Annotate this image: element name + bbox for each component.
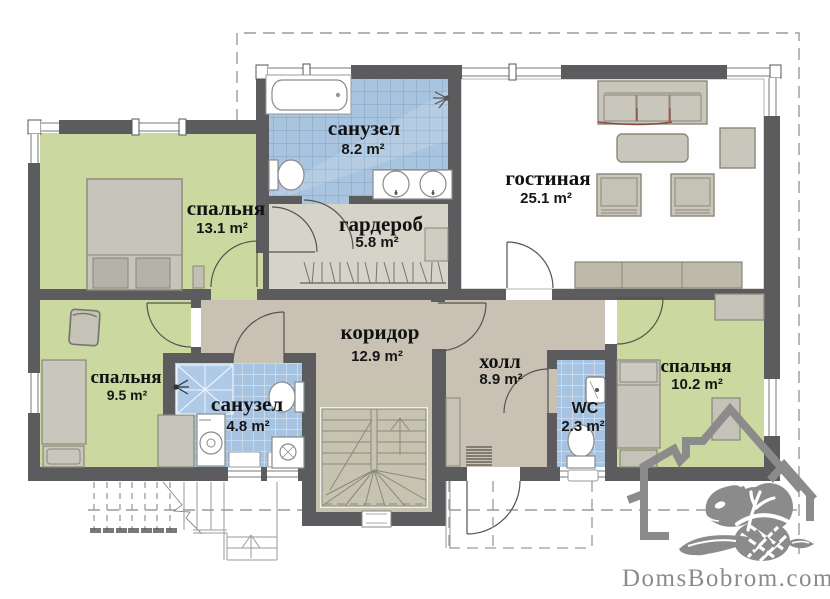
svg-text:гардероб: гардероб xyxy=(339,212,423,236)
svg-text:коридор: коридор xyxy=(341,320,420,344)
svg-text:4.8 m²: 4.8 m² xyxy=(226,418,269,435)
svg-text:WC: WC xyxy=(572,400,599,417)
svg-text:8.2 m²: 8.2 m² xyxy=(341,141,384,158)
svg-text:13.1 m²: 13.1 m² xyxy=(196,220,248,237)
svg-text:2.3 m²: 2.3 m² xyxy=(561,418,604,435)
svg-text:холл: холл xyxy=(479,351,520,373)
svg-text:спальня: спальня xyxy=(91,367,162,388)
svg-text:9.5 m²: 9.5 m² xyxy=(107,387,148,403)
svg-text:спальня: спальня xyxy=(661,356,732,377)
svg-text:гостиная: гостиная xyxy=(505,166,590,190)
svg-text:5.8 m²: 5.8 m² xyxy=(355,234,398,251)
svg-text:25.1 m²: 25.1 m² xyxy=(520,190,572,207)
svg-text:спальня: спальня xyxy=(187,196,265,220)
svg-text:DomsBobrom.com: DomsBobrom.com xyxy=(622,565,830,592)
svg-text:12.9 m²: 12.9 m² xyxy=(351,348,403,365)
svg-text:санузел: санузел xyxy=(211,392,283,416)
svg-text:санузел: санузел xyxy=(328,116,400,140)
svg-text:8.9 m²: 8.9 m² xyxy=(479,371,522,388)
svg-text:10.2 m²: 10.2 m² xyxy=(671,376,723,393)
